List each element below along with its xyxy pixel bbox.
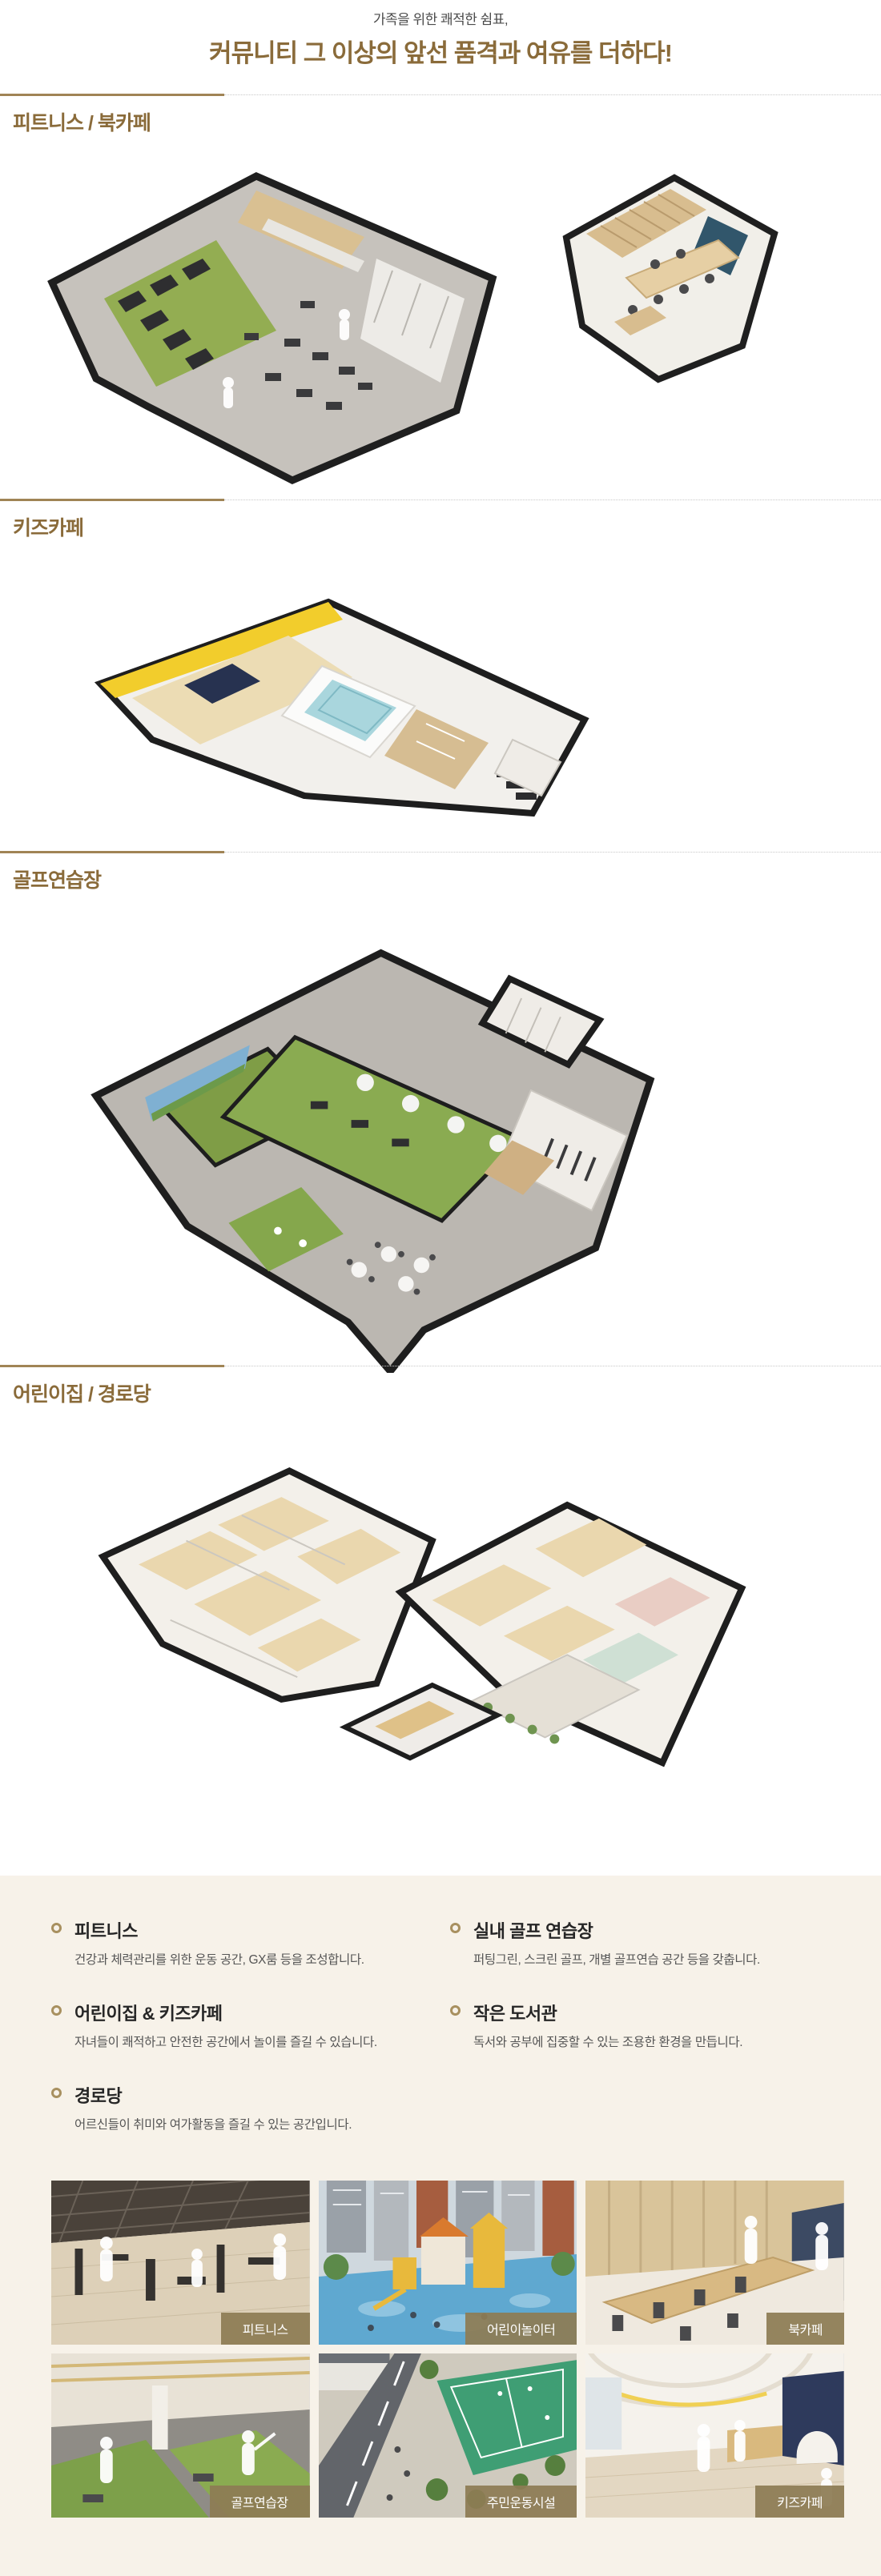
- section-golf: 골프연습장: [0, 851, 881, 1365]
- info-panel: 피트니스 건강과 체력관리를 위한 운동 공간, GX룸 등을 조성합니다. 어…: [0, 1876, 881, 2576]
- feature-desc: 독서와 공부에 집중할 수 있는 조용한 환경을 만듭니다.: [473, 2032, 742, 2050]
- photo-label-playground: 어린이놀이터: [465, 2313, 577, 2345]
- feature-column-right: 실내 골프 연습장 퍼팅그린, 스크린 골프, 개별 골프연습 공간 등을 갖춥…: [450, 1917, 830, 2165]
- feature-column-left: 피트니스 건강과 체력관리를 위한 운동 공간, GX룸 등을 조성합니다. 어…: [51, 1917, 431, 2165]
- section-title-kidscafe: 키즈카페: [13, 512, 881, 541]
- feature-desc: 자녀들이 쾌적하고 안전한 공간에서 놀이를 즐길 수 있습니다.: [74, 2032, 377, 2050]
- feature-title: 경로당: [74, 2082, 352, 2108]
- feature-fitness: 피트니스 건강과 체력관리를 위한 운동 공간, GX룸 등을 조성합니다.: [51, 1917, 431, 1968]
- daycare-senior-plan-area: [0, 1407, 881, 1874]
- feature-indoor-golf: 실내 골프 연습장 퍼팅그린, 스크린 골프, 개별 골프연습 공간 등을 갖춥…: [450, 1917, 830, 1968]
- bullet-ring-icon: [51, 2088, 62, 2098]
- photo-gallery: 피트니스: [51, 2181, 844, 2518]
- section-daycare-senior: 어린이집 / 경로당: [0, 1365, 881, 1876]
- feature-title: 피트니스: [74, 1917, 364, 1943]
- feature-list: 피트니스 건강과 체력관리를 위한 운동 공간, GX룸 등을 조성합니다. 어…: [51, 1917, 830, 2165]
- section-divider: [0, 851, 881, 853]
- gallery-photo-kidscafe: 키즈카페: [585, 2353, 844, 2518]
- section-title-fitness-bookcafe: 피트니스 / 북카페: [13, 107, 881, 136]
- feature-title: 작은 도서관: [473, 2000, 742, 2025]
- photo-label-golf: 골프연습장: [210, 2486, 310, 2518]
- feature-senior-center: 경로당 어르신들이 취미와 여가활동을 즐길 수 있는 공간입니다.: [51, 2082, 431, 2133]
- bullet-ring-icon: [450, 1923, 461, 1933]
- feature-desc: 건강과 체력관리를 위한 운동 공간, GX룸 등을 조성합니다.: [74, 1950, 364, 1968]
- section-divider: [0, 499, 881, 501]
- photo-label-fitness: 피트니스: [221, 2313, 310, 2345]
- section-title-golf: 골프연습장: [13, 865, 881, 893]
- section-fitness-bookcafe: 피트니스 / 북카페: [0, 94, 881, 499]
- section-title-daycare-senior: 어린이집 / 경로당: [13, 1378, 881, 1407]
- page-header: 가족을 위한 쾌적한 쉼표, 커뮤니티 그 이상의 앞선 품격과 여유를 더하다…: [0, 0, 881, 94]
- bullet-ring-icon: [51, 1923, 62, 1933]
- fitness-floorplan-image: [28, 142, 525, 487]
- section-kidscafe: 키즈카페: [0, 499, 881, 851]
- gallery-photo-playground: 어린이놀이터: [319, 2181, 577, 2345]
- kidscafe-plan-area: [0, 541, 881, 849]
- kidscafe-floorplan-image: [64, 556, 617, 848]
- feature-daycare-kidscafe: 어린이집 & 키즈카페 자녀들이 쾌적하고 안전한 공간에서 놀이를 즐길 수 …: [51, 2000, 431, 2050]
- section-divider: [0, 94, 881, 96]
- fitness-bookcafe-plan-area: [0, 136, 881, 497]
- gallery-photo-golf: 골프연습장: [51, 2353, 310, 2518]
- feature-title: 실내 골프 연습장: [473, 1917, 760, 1943]
- photo-label-kidscafe: 키즈카페: [755, 2486, 844, 2518]
- golf-floorplan-image: [44, 905, 757, 1373]
- bullet-ring-icon: [450, 2005, 461, 2016]
- page-title: 커뮤니티 그 이상의 앞선 품격과 여유를 더하다!: [0, 33, 881, 69]
- daycare-floorplan-image: [56, 1422, 761, 1866]
- photo-label-bookcafe: 북카페: [766, 2313, 844, 2345]
- golf-plan-area: [0, 893, 881, 1363]
- feature-desc: 어르신들이 취미와 여가활동을 즐길 수 있는 공간입니다.: [74, 2115, 352, 2133]
- bullet-ring-icon: [51, 2005, 62, 2016]
- gallery-photo-fitness: 피트니스: [51, 2181, 310, 2345]
- section-divider: [0, 1365, 881, 1367]
- photo-label-outdoor-sports: 주민운동시설: [465, 2486, 577, 2518]
- community-brochure-page: 가족을 위한 쾌적한 쉼표, 커뮤니티 그 이상의 앞선 품격과 여유를 더하다…: [0, 0, 881, 2576]
- gallery-photo-bookcafe: 북카페: [585, 2181, 844, 2345]
- feature-title: 어린이집 & 키즈카페: [74, 2000, 377, 2025]
- feature-small-library: 작은 도서관 독서와 공부에 집중할 수 있는 조용한 환경을 만듭니다.: [450, 2000, 830, 2050]
- feature-desc: 퍼팅그린, 스크린 골프, 개별 골프연습 공간 등을 갖춥니다.: [473, 1950, 760, 1968]
- gallery-photo-outdoor-sports: 주민운동시설: [319, 2353, 577, 2518]
- bookcafe-floorplan-image: [538, 146, 803, 386]
- page-subtitle: 가족을 위한 쾌적한 쉼표,: [0, 8, 881, 28]
